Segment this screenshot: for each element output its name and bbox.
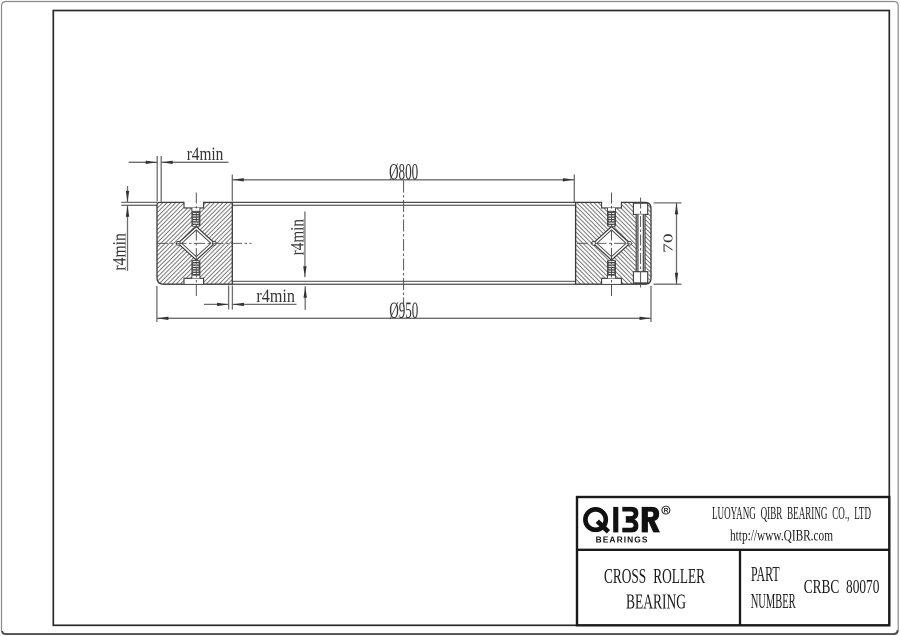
- svg-text:Ø800: Ø800: [389, 159, 418, 184]
- svg-text:BEARING: BEARING: [626, 590, 686, 614]
- svg-text:r4min: r4min: [256, 287, 295, 307]
- svg-text:NUMBER: NUMBER: [751, 589, 796, 613]
- svg-text:r4min: r4min: [111, 233, 131, 271]
- svg-text:PART: PART: [751, 562, 780, 586]
- svg-text:CRBC 80070: CRBC 80070: [804, 577, 880, 598]
- svg-text:CROSS ROLLER: CROSS ROLLER: [604, 564, 706, 588]
- svg-text:70: 70: [660, 233, 675, 253]
- svg-text:BEARINGS: BEARINGS: [596, 535, 649, 545]
- svg-text:http://www.QIBR.com: http://www.QIBR.com: [730, 528, 833, 545]
- svg-text:Ø950: Ø950: [389, 298, 418, 323]
- svg-text:LUOYANG QIBR BEARING CO., LTD: LUOYANG QIBR BEARING CO., LTD: [712, 503, 871, 523]
- svg-text:R: R: [664, 507, 669, 514]
- svg-text:r4min: r4min: [288, 219, 308, 255]
- svg-text:r4min: r4min: [187, 145, 224, 165]
